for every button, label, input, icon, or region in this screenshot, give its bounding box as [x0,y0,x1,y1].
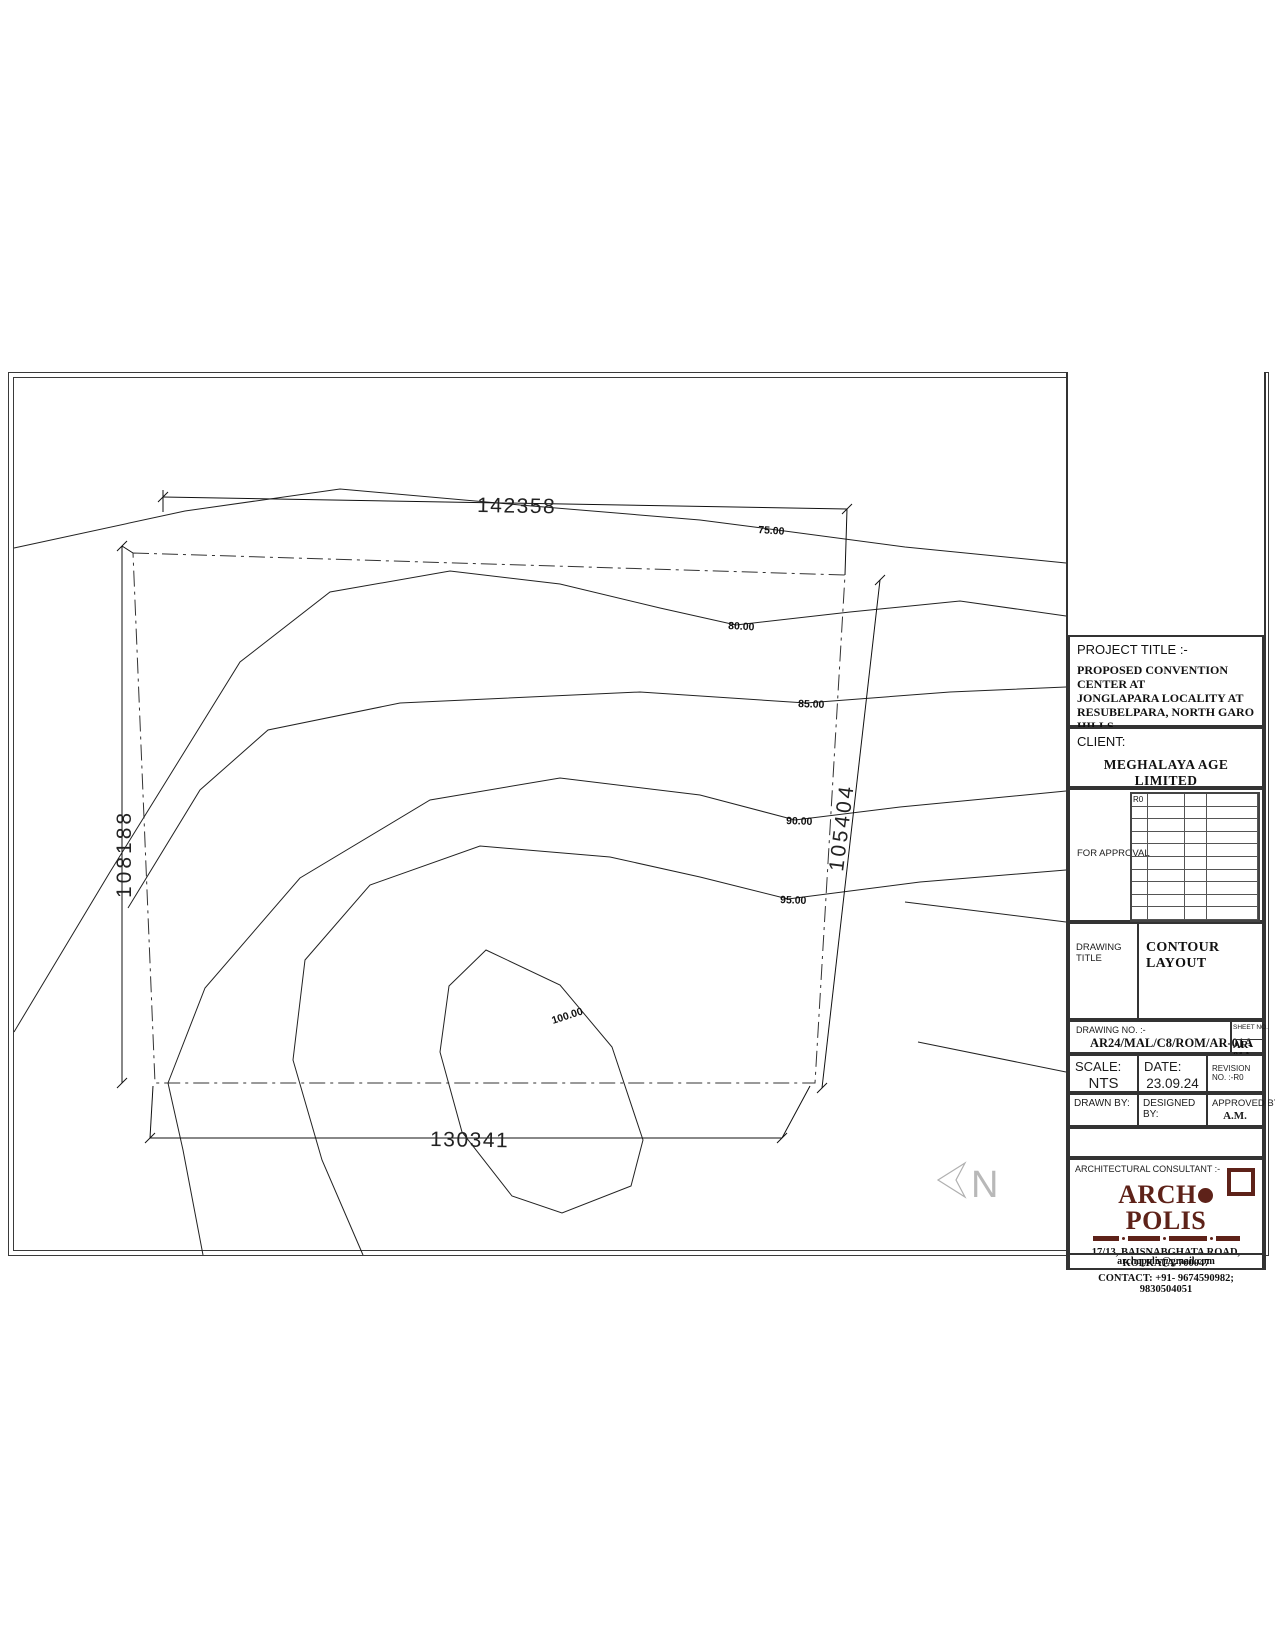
client-label: CLIENT: [1077,734,1255,749]
logo-tagline-bar [1081,1236,1251,1241]
revision-cell [1185,819,1207,832]
revision-cell [1207,844,1258,857]
approved-by-value: A.M. [1208,1110,1262,1122]
drawing-no-value: AR24/MAL/C8/ROM/AR-01A [1090,1036,1253,1051]
revision-cell [1148,819,1185,832]
contour-label-100: 100.00 [550,1005,584,1026]
tagline-block [1169,1236,1207,1241]
revision-cell [1185,832,1207,845]
revision-cell [1207,819,1258,832]
scale-cell: SCALE: NTS [1070,1056,1137,1091]
revision-cell [1207,895,1258,908]
revision-cell [1185,882,1207,895]
drawing-title-label: DRAWING TITLE [1076,942,1137,964]
contour-80 [14,571,1066,1032]
drawn-designed-approved-row: DRAWN BY: DESIGNED BY: APPROVED BY :- A.… [1068,1093,1264,1127]
project-title-line: JONGLAPARA LOCALITY AT [1077,691,1255,705]
revision-cell [1148,870,1185,883]
drawing-no-label: DRAWING NO. :- [1076,1025,1146,1035]
drawing-sheet: 142358 108188 105404 130341 75.00 80.00 … [0,0,1275,1650]
dimension-top: 142358 [477,494,556,518]
north-label: N [971,1164,998,1206]
empty-section [1068,1127,1264,1158]
date-label: DATE: [1144,1059,1181,1074]
tagline-dot [1122,1237,1125,1240]
dimension-right: 105404 [825,782,859,872]
dimension-left: 108188 [113,810,136,898]
revision-cell [1207,857,1258,870]
revision-cell [1132,907,1148,920]
designed-by-label: DESIGNED BY: [1143,1098,1206,1120]
contour-segment [905,902,1066,922]
revision-table: R0 [1130,792,1260,922]
revision-cell [1132,870,1148,883]
dimension-bottom: 130341 [430,1128,509,1152]
revision-cell [1185,807,1207,820]
contour-90 [168,778,1066,1255]
dimension-lines [117,490,885,1143]
sheet-no-label: SHEET NO. [1233,1024,1268,1031]
project-title-section: PROJECT TITLE :- PROPOSED CONVENTION CEN… [1068,635,1264,727]
revision-cell [1132,844,1148,857]
tagline-dot [1163,1237,1166,1240]
revision-cell [1207,794,1258,807]
approved-by-cell: APPROVED BY :- A.M. [1206,1095,1262,1125]
tagline-block [1128,1236,1160,1241]
drawn-by-label: DRAWN BY: [1074,1098,1130,1109]
north-arrow-icon: N [938,1163,998,1206]
logo-text-right: POLIS [1126,1206,1207,1235]
project-title-label: PROJECT TITLE :- [1077,642,1255,657]
revision-cell [1148,895,1185,908]
project-title-line: PROPOSED CONVENTION CENTER AT [1077,663,1255,691]
client-section: CLIENT: MEGHALAYA AGE LIMITED [1068,727,1264,788]
scale-date-revision-row: SCALE: NTS DATE: 23.09.24 REVISION NO. :… [1068,1054,1264,1093]
revision-cell [1207,807,1258,820]
drawing-title-value: CONTOUR LAYOUT [1146,940,1262,972]
drawn-by-cell: DRAWN BY: [1070,1095,1137,1125]
revision-cell [1207,907,1258,920]
date-value: 23.09.24 [1139,1076,1206,1091]
revision-cell [1185,907,1207,920]
contour-85 [128,687,1066,908]
contour-label-90: 90.00 [786,815,813,828]
revision-cell [1148,832,1185,845]
scale-value: NTS [1070,1075,1137,1092]
contour-100 [440,950,643,1213]
drawing-title-section: DRAWING TITLE CONTOUR LAYOUT [1068,922,1264,1020]
revision-cell [1185,844,1207,857]
consultant-email: archopolis@gmail.com [1070,1253,1262,1268]
contour-label-95: 95.00 [780,894,807,907]
revision-cell [1185,857,1207,870]
contour-label-85: 85.00 [798,698,825,711]
consultant-section: ARCHITECTURAL CONSULTANT :- ARCHPOLIS 17… [1068,1158,1264,1270]
revision-cell [1148,807,1185,820]
date-cell: DATE: 23.09.24 [1137,1056,1206,1091]
revision-cell [1185,794,1207,807]
title-block: PROJECT TITLE :- PROPOSED CONVENTION CEN… [1066,372,1266,1270]
contour-segment [918,1042,1066,1072]
revision-cell [1132,882,1148,895]
logo-circle-icon [1198,1188,1213,1203]
approval-section: FOR APPROVAL R0 [1068,788,1264,922]
tagline-dot [1210,1237,1213,1240]
revision-cell [1132,819,1148,832]
revision-cell [1207,832,1258,845]
revision-cell [1148,907,1185,920]
revision-cell [1148,882,1185,895]
revision-cell [1148,857,1185,870]
scale-label: SCALE: [1075,1059,1121,1074]
revision-cell [1132,807,1148,820]
revision-cell [1185,895,1207,908]
revision-cell [1207,882,1258,895]
title-block-spacer [1068,372,1264,635]
client-name: MEGHALAYA AGE LIMITED [1077,757,1255,789]
contour-lines [14,489,1066,1255]
tagline-block [1093,1236,1119,1241]
revision-cell-value: R0 [1132,794,1148,807]
revision-cell [1132,832,1148,845]
designed-by-cell: DESIGNED BY: [1137,1095,1206,1125]
logo-text-left: ARCH [1118,1180,1197,1209]
contour-label-75: 75.00 [758,524,785,538]
revision-cell [1132,857,1148,870]
approved-by-label: APPROVED BY :- [1212,1098,1275,1109]
revision-cell [1207,870,1258,883]
revision-cell [1132,895,1148,908]
tagline-block [1216,1236,1240,1241]
revision-no-cell: REVISION NO. :-R0 [1206,1056,1262,1091]
contour-label-80: 80.00 [728,620,755,633]
archopolis-logo: ARCHPOLIS [1081,1182,1251,1241]
revision-no-label: REVISION NO. :-R0 [1212,1064,1262,1082]
logo-wordmark: ARCHPOLIS [1081,1182,1251,1234]
sheet-no-cell: SHEET NO. AR-01A [1230,1022,1262,1052]
revision-cell [1148,844,1185,857]
consultant-contact: CONTACT: +91- 9674590982; 9830504051 [1075,1273,1257,1295]
revision-cell [1148,794,1185,807]
drawing-no-section: DRAWING NO. :- AR24/MAL/C8/ROM/AR-01A SH… [1068,1020,1264,1054]
drawing-title-label-cell: DRAWING TITLE [1070,924,1139,1018]
revision-cell [1185,870,1207,883]
